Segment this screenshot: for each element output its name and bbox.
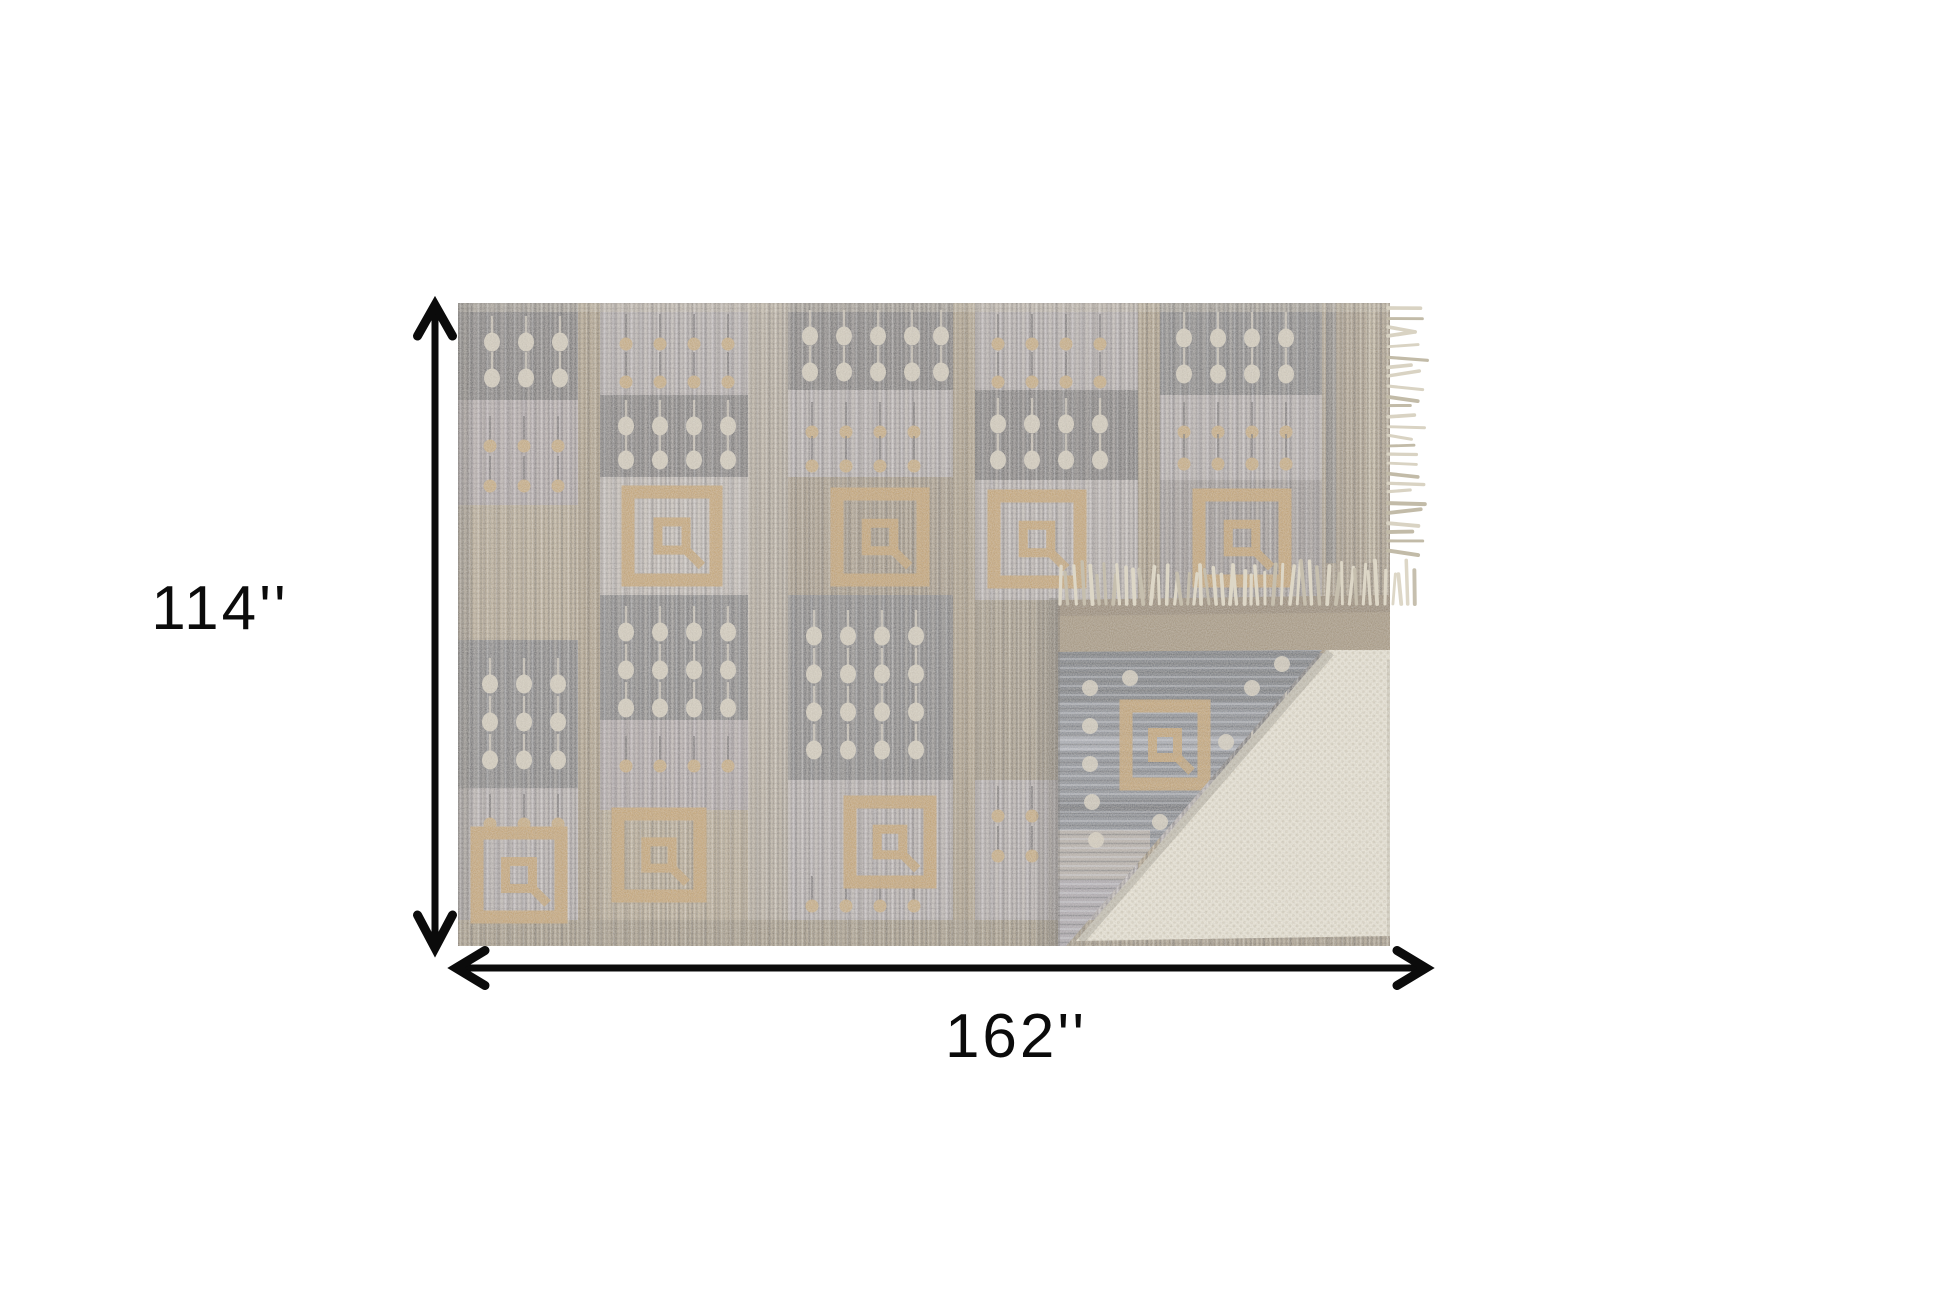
height-dimension-label: 114'' xyxy=(110,578,330,640)
rug-dimension-diagram xyxy=(0,0,1945,1297)
product-dimension-image: 114'' 162'' xyxy=(0,0,1945,1297)
folded-corner xyxy=(1036,595,1390,946)
height-arrow xyxy=(418,305,453,948)
rug-image xyxy=(458,303,1390,946)
width-dimension-label: 162'' xyxy=(906,1006,1126,1068)
width-arrow xyxy=(456,951,1426,986)
